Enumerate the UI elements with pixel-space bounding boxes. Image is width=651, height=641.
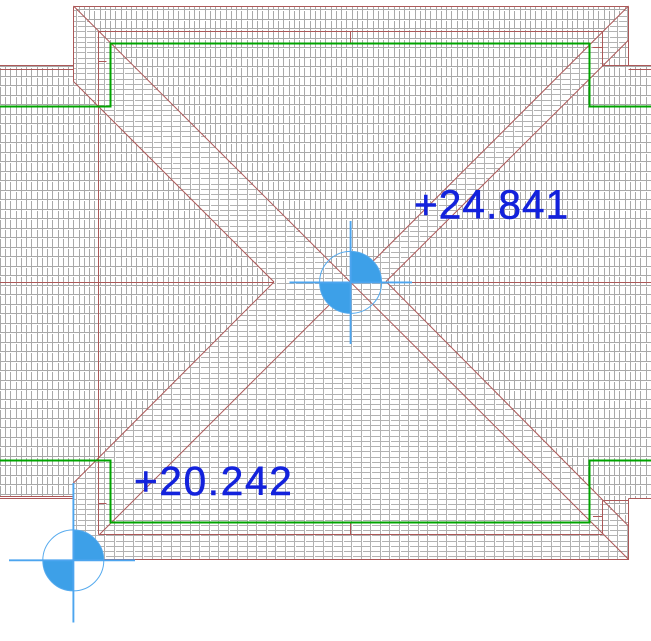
- svg-text:+24.841: +24.841: [414, 182, 569, 228]
- svg-text:+20.242: +20.242: [134, 458, 293, 504]
